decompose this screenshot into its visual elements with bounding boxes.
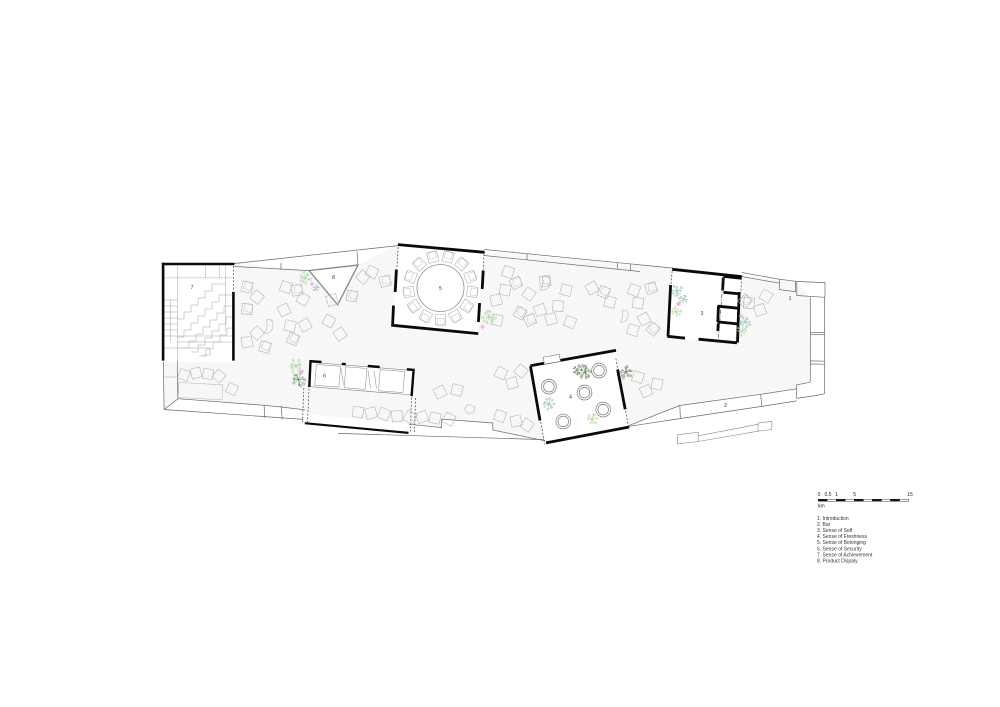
svg-text:5: 5 (853, 492, 856, 498)
svg-text:km: km (818, 504, 825, 510)
svg-text:8: 8 (332, 275, 335, 281)
svg-text:15: 15 (907, 492, 913, 498)
svg-text:2: 2 (724, 403, 727, 409)
svg-text:0.5: 0.5 (825, 492, 832, 498)
svg-text:4: 4 (569, 395, 572, 401)
svg-text:5: 5 (439, 286, 442, 292)
svg-text:1: 1 (835, 492, 838, 498)
svg-text:3: 3 (701, 311, 704, 317)
svg-text:7: 7 (191, 285, 194, 291)
svg-text:6: 6 (323, 374, 326, 380)
svg-text:0: 0 (818, 492, 821, 498)
svg-text:8. Product Dispaly: 8. Product Dispaly (817, 558, 858, 564)
svg-text:1: 1 (789, 296, 792, 302)
